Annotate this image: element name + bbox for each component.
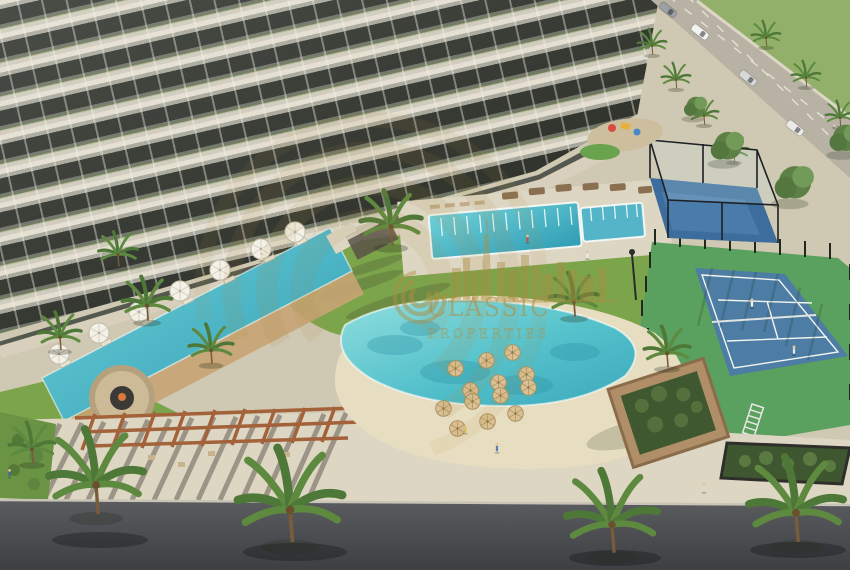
watermark-title: CLASSIC	[428, 293, 550, 323]
white-umbrella	[89, 323, 109, 343]
tree-canopy	[682, 97, 708, 123]
thatch-umbrella	[508, 406, 524, 422]
tree-canopy	[707, 132, 744, 169]
palm-tree	[638, 29, 667, 58]
aerial-render: CLASSIC PROPERTIES	[0, 0, 850, 570]
watermark-subtitle: PROPERTIES	[428, 327, 550, 342]
palm-tree	[662, 63, 691, 92]
amenity-deck-scene: CLASSIC PROPERTIES	[0, 0, 850, 570]
playground	[580, 114, 665, 160]
tree-canopy	[771, 166, 814, 209]
palm-tree	[99, 232, 138, 272]
